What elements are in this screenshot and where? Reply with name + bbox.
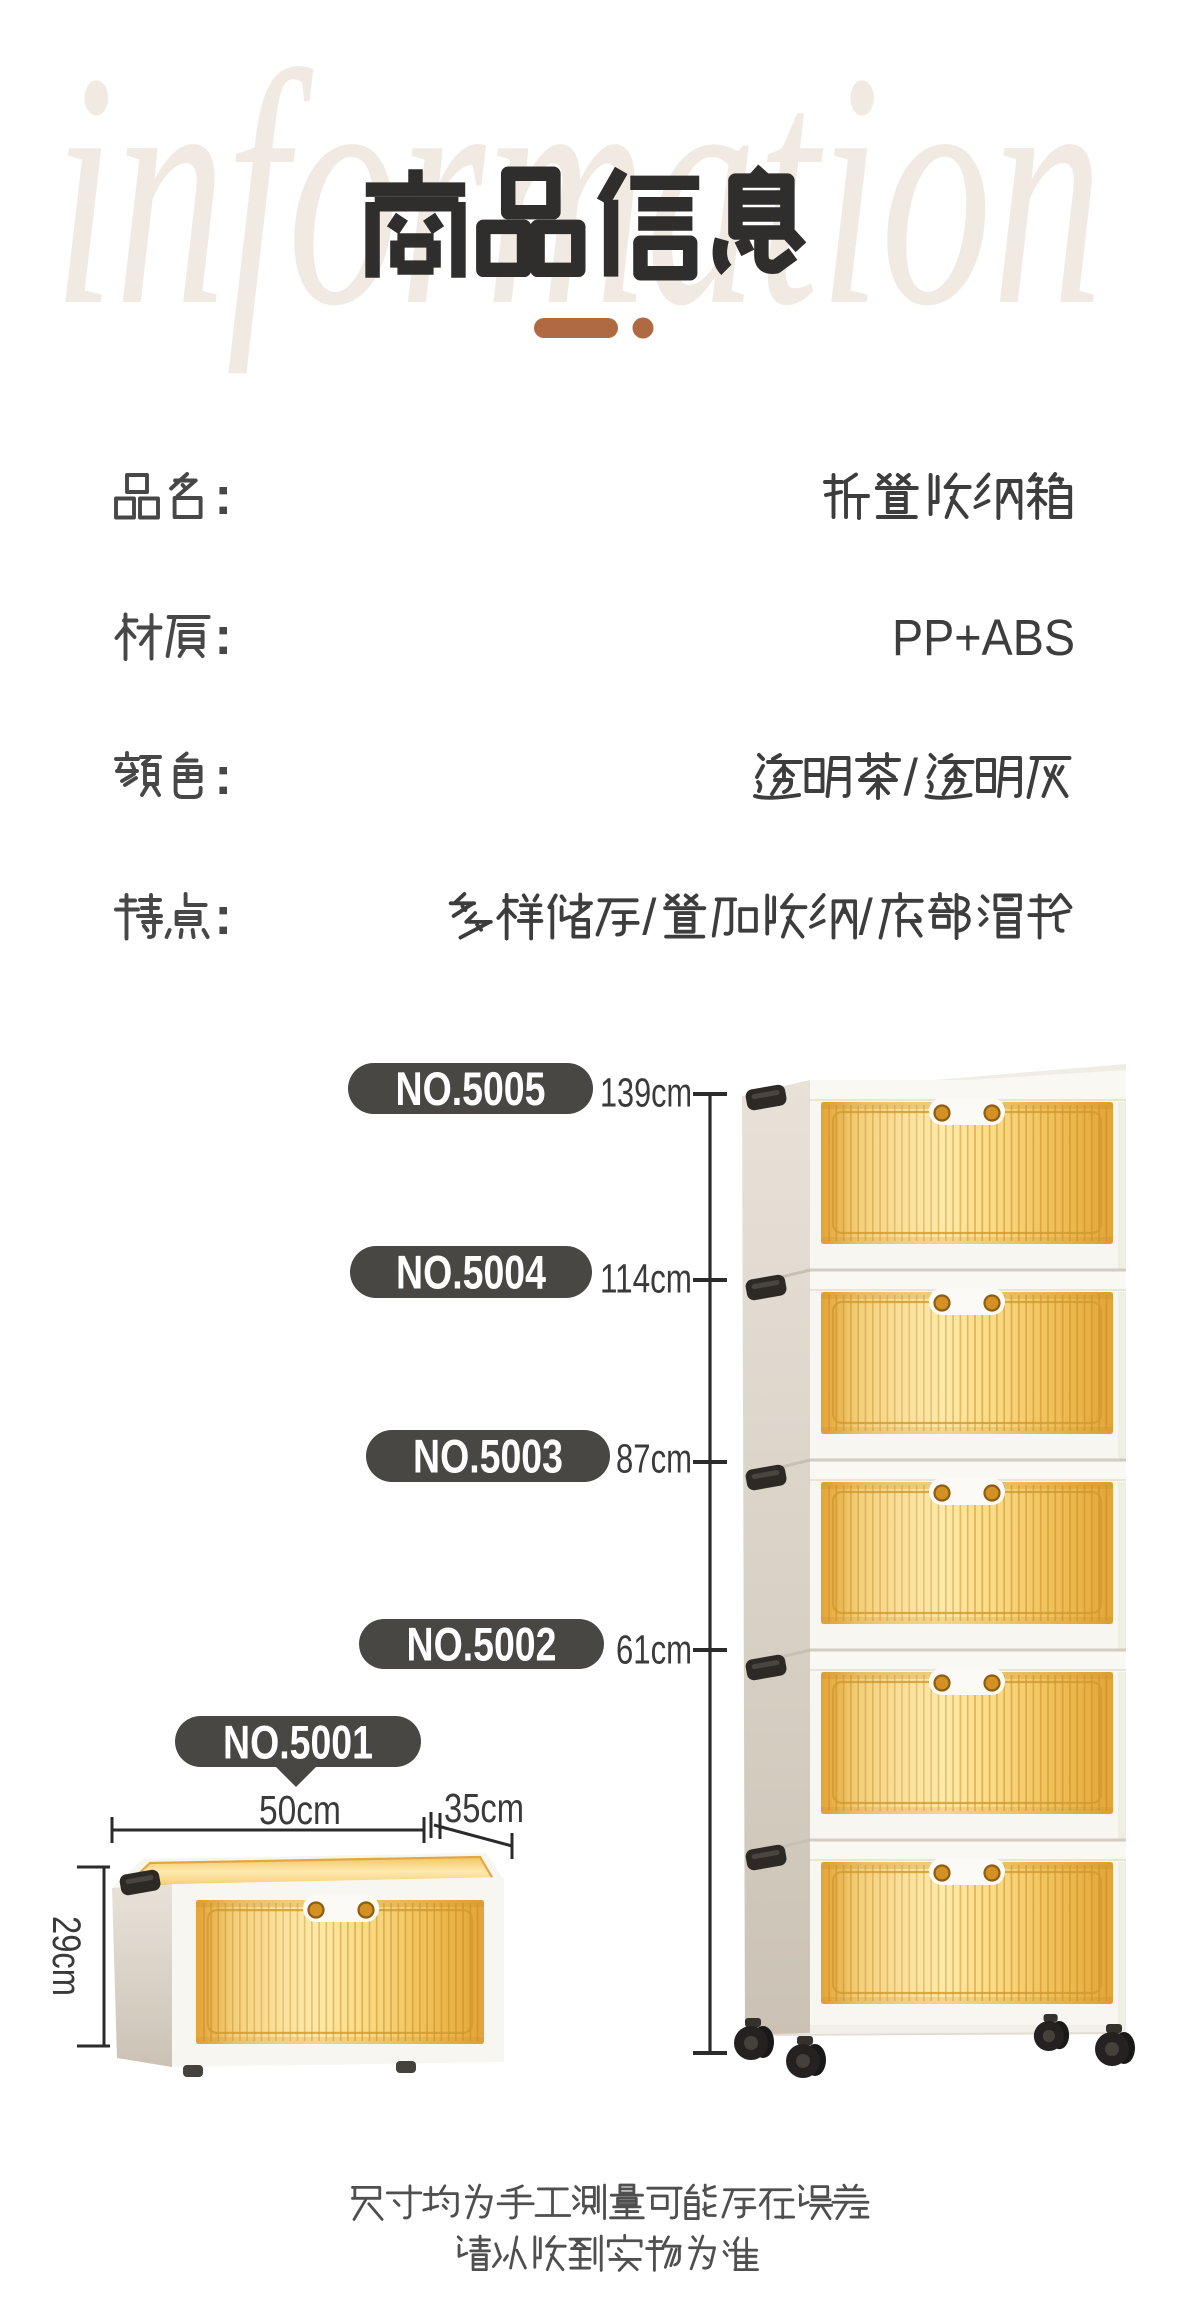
svg-text:NO.5004: NO.5004	[396, 1246, 546, 1299]
svg-text::: :	[214, 886, 232, 946]
svg-text:PP+ABS: PP+ABS	[892, 609, 1075, 666]
svg-text:NO.5003: NO.5003	[413, 1430, 563, 1483]
svg-text:35cm: 35cm	[444, 1785, 524, 1831]
svg-text:/: /	[904, 749, 919, 807]
svg-text:29cm: 29cm	[44, 1916, 88, 1996]
svg-text:/: /	[642, 888, 657, 945]
svg-text::: :	[214, 746, 232, 806]
svg-text:114cm: 114cm	[600, 1256, 692, 1302]
svg-text:139cm: 139cm	[600, 1070, 692, 1116]
svg-text::: :	[214, 606, 232, 666]
svg-text::: :	[214, 466, 232, 526]
svg-text:50cm: 50cm	[259, 1787, 341, 1833]
svg-text:NO.5005: NO.5005	[396, 1062, 546, 1115]
svg-text:/: /	[859, 888, 874, 945]
svg-text:NO.5002: NO.5002	[407, 1618, 557, 1671]
svg-text:87cm: 87cm	[616, 1436, 692, 1482]
svg-text:61cm: 61cm	[616, 1627, 692, 1673]
svg-text:NO.5001: NO.5001	[223, 1716, 373, 1769]
